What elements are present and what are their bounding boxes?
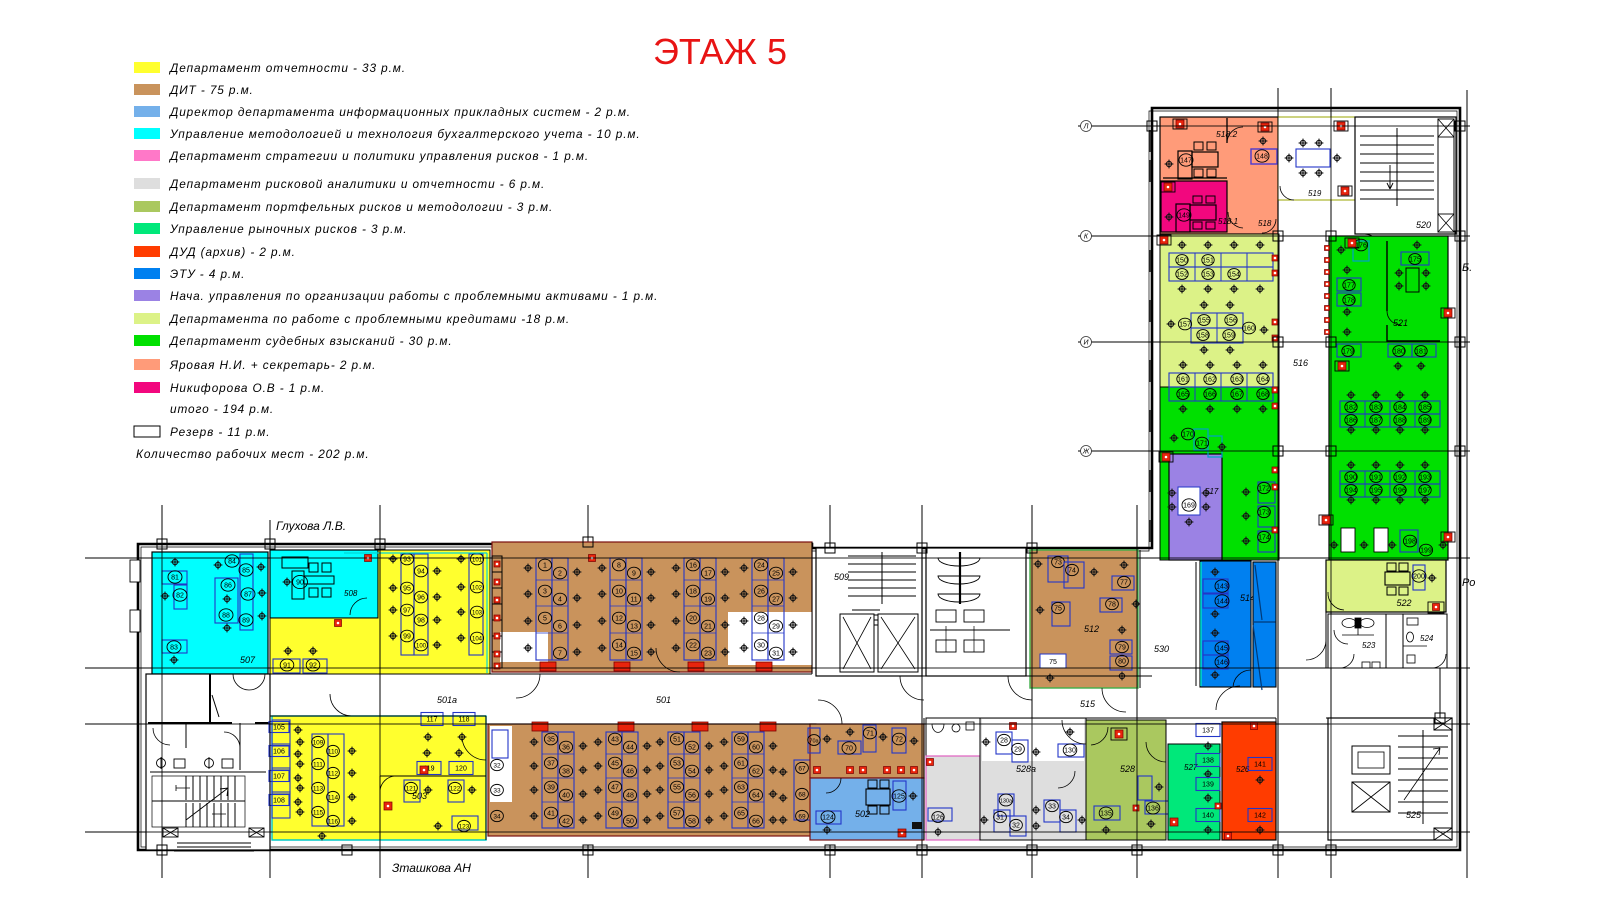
- svg-text:Департамент судебных взысканий: Департамент судебных взысканий - 30 р.м.: [168, 334, 453, 348]
- svg-text:521: 521: [1393, 318, 1408, 328]
- svg-text:25: 25: [772, 570, 780, 577]
- svg-text:114: 114: [328, 794, 339, 801]
- svg-text:28: 28: [1000, 737, 1008, 744]
- svg-text:186: 186: [1345, 417, 1357, 424]
- svg-text:150: 150: [1176, 257, 1188, 264]
- svg-text:528: 528: [1120, 764, 1135, 774]
- svg-text:94: 94: [417, 568, 425, 575]
- svg-text:122: 122: [450, 785, 461, 792]
- svg-text:168: 168: [1257, 391, 1269, 398]
- svg-text:53: 53: [673, 760, 681, 767]
- svg-text:29: 29: [772, 623, 780, 630]
- svg-text:14: 14: [615, 642, 623, 649]
- svg-text:48: 48: [626, 792, 634, 799]
- svg-text:187: 187: [1370, 417, 1382, 424]
- svg-text:169: 169: [1183, 502, 1195, 509]
- svg-text:116: 116: [328, 818, 339, 825]
- svg-text:182: 182: [1345, 404, 1357, 411]
- svg-text:Количество рабочих мест - 202: Количество рабочих мест - 202 р.м.: [136, 447, 370, 461]
- svg-text:Нача. управления по организаци: Нача. управления по организации работы с…: [170, 289, 658, 303]
- svg-text:63: 63: [737, 784, 745, 791]
- svg-text:38: 38: [562, 768, 570, 775]
- svg-text:Департамента по работе с пробл: Департамента по работе с проблемными кре…: [168, 312, 570, 326]
- svg-text:99: 99: [403, 633, 411, 640]
- svg-text:71: 71: [866, 730, 874, 737]
- svg-text:33: 33: [493, 787, 501, 794]
- svg-text:42: 42: [562, 818, 570, 825]
- svg-text:7: 7: [558, 650, 562, 657]
- svg-text:83: 83: [170, 644, 178, 651]
- svg-text:200: 200: [1413, 573, 1425, 580]
- svg-text:6: 6: [558, 623, 562, 630]
- svg-text:Л: Л: [1083, 124, 1089, 131]
- svg-text:171: 171: [1196, 440, 1208, 447]
- svg-text:итого - 194 р.м.: итого - 194 р.м.: [170, 402, 274, 416]
- svg-text:125: 125: [893, 793, 905, 800]
- svg-text:12: 12: [615, 615, 623, 622]
- svg-text:517: 517: [1205, 487, 1219, 496]
- svg-text:96: 96: [417, 594, 425, 601]
- svg-text:86: 86: [224, 582, 232, 589]
- svg-text:192: 192: [1394, 474, 1406, 481]
- svg-text:78: 78: [1108, 601, 1116, 608]
- svg-text:75: 75: [1049, 659, 1057, 666]
- svg-text:67: 67: [798, 765, 806, 772]
- svg-text:62: 62: [752, 768, 760, 775]
- svg-text:ДУД (архив) - 2 р.м.: ДУД (архив) - 2 р.м.: [168, 245, 296, 259]
- svg-text:98: 98: [417, 617, 425, 624]
- svg-text:178: 178: [1343, 297, 1355, 304]
- svg-text:189: 189: [1419, 417, 1431, 424]
- svg-text:81: 81: [171, 574, 179, 581]
- svg-text:22: 22: [689, 642, 697, 649]
- svg-text:65: 65: [737, 810, 745, 817]
- svg-text:19: 19: [704, 596, 712, 603]
- svg-text:181: 181: [1415, 348, 1427, 355]
- svg-text:11: 11: [630, 596, 637, 603]
- svg-text:24: 24: [757, 562, 765, 569]
- svg-text:173: 173: [1258, 509, 1270, 516]
- svg-text:54: 54: [688, 768, 696, 775]
- svg-text:46: 46: [626, 768, 634, 775]
- svg-text:115: 115: [313, 809, 324, 816]
- svg-text:13: 13: [630, 623, 638, 630]
- svg-text:141: 141: [1254, 762, 1266, 769]
- svg-text:55: 55: [673, 784, 681, 791]
- svg-text:85: 85: [242, 567, 250, 574]
- svg-text:108: 108: [273, 798, 285, 805]
- svg-text:50: 50: [626, 818, 634, 825]
- svg-text:90: 90: [296, 579, 304, 586]
- svg-text:69: 69: [798, 813, 806, 820]
- svg-text:3: 3: [543, 588, 547, 595]
- svg-text:36: 36: [562, 744, 570, 751]
- svg-text:Никифорова О.В - 1 р.м.: Никифорова О.В - 1 р.м.: [170, 381, 325, 395]
- svg-text:15: 15: [630, 650, 638, 657]
- svg-text:Департамент портфельных рисков: Департамент портфельных рисков и методол…: [168, 200, 553, 214]
- svg-text:44: 44: [626, 744, 634, 751]
- svg-text:518: 518: [1258, 219, 1272, 228]
- svg-text:523: 523: [1362, 641, 1376, 650]
- svg-text:143: 143: [1216, 583, 1228, 590]
- svg-text:28: 28: [757, 615, 765, 622]
- svg-text:102: 102: [472, 585, 483, 591]
- svg-text:Департамент рисковой аналитики: Департамент рисковой аналитики и отчетно…: [168, 177, 545, 191]
- svg-text:512: 512: [1084, 624, 1099, 634]
- svg-text:49: 49: [611, 810, 619, 817]
- svg-text:33: 33: [1048, 803, 1056, 810]
- svg-text:ДИТ - 75 р.м.: ДИТ - 75 р.м.: [168, 83, 254, 97]
- svg-text:151: 151: [1202, 257, 1214, 264]
- svg-text:87: 87: [244, 591, 252, 598]
- svg-text:34: 34: [1062, 814, 1070, 821]
- svg-text:21: 21: [704, 623, 712, 630]
- svg-text:123: 123: [459, 823, 470, 830]
- svg-text:31: 31: [772, 650, 780, 657]
- svg-text:52: 52: [688, 744, 696, 751]
- svg-text:146: 146: [1216, 659, 1228, 666]
- svg-text:43: 43: [611, 736, 619, 743]
- svg-text:188: 188: [1394, 417, 1406, 424]
- svg-text:88: 88: [222, 612, 230, 619]
- svg-text:Управление методологией и техн: Управление методологией и технология бух…: [169, 127, 641, 141]
- svg-text:198: 198: [1404, 538, 1416, 545]
- svg-text:18: 18: [689, 588, 697, 595]
- svg-text:74: 74: [1068, 567, 1076, 574]
- svg-text:190: 190: [1345, 474, 1357, 481]
- svg-text:162: 162: [1204, 376, 1216, 383]
- svg-text:16: 16: [689, 562, 697, 569]
- svg-text:175: 175: [1409, 256, 1421, 263]
- svg-text:153: 153: [1202, 271, 1214, 278]
- svg-text:158: 158: [1197, 332, 1209, 339]
- svg-text:37: 37: [547, 760, 555, 767]
- svg-text:105: 105: [273, 725, 285, 732]
- svg-text:8: 8: [617, 562, 621, 569]
- svg-text:47: 47: [611, 784, 619, 791]
- svg-text:525: 525: [1406, 810, 1422, 820]
- svg-text:154: 154: [1228, 271, 1240, 278]
- svg-text:66: 66: [752, 818, 760, 825]
- svg-text:Яровая Н.И. + секретарь- 2 р.м: Яровая Н.И. + секретарь- 2 р.м.: [169, 358, 376, 372]
- svg-text:170: 170: [1182, 431, 1194, 438]
- svg-text:75: 75: [1054, 605, 1062, 612]
- svg-text:ЭТАЖ 5: ЭТАЖ 5: [653, 31, 787, 72]
- svg-text:107: 107: [273, 774, 285, 781]
- svg-text:51: 51: [673, 736, 681, 743]
- svg-text:2: 2: [558, 570, 562, 577]
- svg-text:17: 17: [704, 570, 712, 577]
- svg-text:157: 157: [1179, 321, 1191, 328]
- svg-text:110: 110: [328, 748, 339, 755]
- svg-text:142: 142: [1254, 813, 1266, 820]
- svg-text:31: 31: [996, 814, 1004, 821]
- svg-text:138: 138: [1202, 758, 1214, 765]
- svg-text:93: 93: [403, 556, 411, 563]
- svg-text:68: 68: [798, 791, 806, 798]
- svg-text:516: 516: [1293, 358, 1308, 368]
- svg-text:130: 130: [1064, 747, 1076, 754]
- svg-text:9: 9: [632, 570, 636, 577]
- svg-text:82: 82: [176, 592, 184, 599]
- svg-text:152: 152: [1176, 271, 1188, 278]
- svg-text:180: 180: [1393, 348, 1405, 355]
- svg-text:528а: 528а: [1016, 764, 1036, 774]
- svg-text:72: 72: [895, 736, 903, 743]
- svg-text:70: 70: [845, 745, 853, 752]
- svg-text:130а: 130а: [1000, 798, 1013, 804]
- svg-text:501а: 501а: [437, 695, 457, 705]
- svg-text:164: 164: [1257, 376, 1269, 383]
- svg-text:34: 34: [493, 813, 501, 820]
- svg-text:509: 509: [834, 572, 849, 582]
- svg-text:77: 77: [1120, 579, 1128, 586]
- svg-text:57: 57: [673, 810, 681, 817]
- svg-text:156: 156: [1225, 317, 1237, 324]
- svg-text:195: 195: [1370, 487, 1382, 494]
- svg-text:140: 140: [1202, 813, 1214, 820]
- svg-text:61: 61: [737, 760, 745, 767]
- svg-text:174: 174: [1258, 534, 1270, 541]
- svg-text:126: 126: [932, 814, 944, 821]
- svg-text:124: 124: [822, 814, 834, 821]
- svg-text:32: 32: [493, 762, 501, 769]
- svg-text:41: 41: [547, 810, 555, 817]
- svg-text:183: 183: [1370, 404, 1382, 411]
- svg-text:196: 196: [1394, 487, 1406, 494]
- svg-text:4: 4: [558, 596, 562, 603]
- svg-text:Директор департамента информац: Директор департамента информационных при…: [168, 105, 631, 119]
- svg-text:1: 1: [543, 562, 547, 569]
- svg-text:97: 97: [403, 607, 411, 614]
- svg-text:59: 59: [737, 736, 745, 743]
- svg-text:Глухова Л.В.: Глухова Л.В.: [276, 519, 346, 533]
- svg-text:73: 73: [1054, 559, 1062, 566]
- svg-text:121: 121: [406, 785, 417, 792]
- svg-text:32: 32: [1012, 822, 1020, 829]
- svg-text:191: 191: [1370, 474, 1382, 481]
- svg-text:60: 60: [752, 744, 760, 751]
- svg-text:524: 524: [1420, 634, 1434, 643]
- svg-text:Ж: Ж: [1082, 449, 1090, 456]
- svg-text:10: 10: [615, 588, 623, 595]
- svg-text:161: 161: [1177, 376, 1189, 383]
- svg-text:519: 519: [1308, 189, 1322, 198]
- svg-text:508: 508: [344, 589, 358, 598]
- svg-text:39: 39: [547, 784, 555, 791]
- svg-text:56: 56: [688, 792, 696, 799]
- svg-text:100: 100: [416, 643, 427, 649]
- svg-text:112: 112: [328, 770, 339, 777]
- svg-text:111: 111: [313, 761, 323, 768]
- svg-text:144: 144: [1216, 598, 1228, 605]
- svg-text:145: 145: [1216, 645, 1228, 652]
- svg-text:520: 520: [1416, 220, 1431, 230]
- svg-text:Резерв - 11 р.м.: Резерв - 11 р.м.: [170, 425, 270, 439]
- svg-text:ЭТУ - 4 р.м.: ЭТУ - 4 р.м.: [170, 267, 245, 281]
- svg-text:118: 118: [458, 717, 469, 724]
- svg-text:530: 530: [1154, 644, 1169, 654]
- svg-text:185: 185: [1419, 404, 1431, 411]
- svg-text:163: 163: [1231, 376, 1243, 383]
- svg-text:165: 165: [1177, 391, 1189, 398]
- svg-text:117: 117: [426, 717, 437, 724]
- svg-text:5: 5: [543, 615, 547, 622]
- svg-text:507: 507: [240, 655, 256, 665]
- svg-text:501: 501: [656, 695, 671, 705]
- svg-text:199: 199: [1420, 547, 1432, 554]
- svg-text:515: 515: [1080, 699, 1096, 709]
- svg-text:135: 135: [1100, 810, 1112, 817]
- svg-text:95: 95: [403, 585, 411, 592]
- svg-text:70а: 70а: [809, 738, 819, 744]
- svg-text:193: 193: [1419, 474, 1431, 481]
- svg-text:177: 177: [1343, 282, 1355, 289]
- svg-text:160: 160: [1243, 325, 1255, 332]
- svg-text:Управление рыночных рисков - 3: Управление рыночных рисков - 3 р.м.: [169, 222, 407, 236]
- svg-text:155: 155: [1198, 317, 1210, 324]
- svg-text:179: 179: [1342, 348, 1354, 355]
- svg-text:518.1: 518.1: [1218, 217, 1238, 226]
- svg-text:84: 84: [228, 558, 236, 565]
- svg-text:23: 23: [704, 650, 712, 657]
- svg-text:149: 149: [1178, 212, 1190, 219]
- svg-text:197: 197: [1419, 487, 1431, 494]
- svg-text:147: 147: [1180, 157, 1192, 164]
- svg-text:64: 64: [752, 792, 760, 799]
- svg-text:139: 139: [1202, 782, 1214, 789]
- svg-text:136: 136: [1147, 805, 1159, 812]
- svg-text:26: 26: [757, 588, 765, 595]
- svg-text:106: 106: [273, 749, 285, 756]
- svg-text:172: 172: [1258, 485, 1270, 492]
- svg-text:40: 40: [562, 792, 570, 799]
- svg-text:137: 137: [1202, 728, 1214, 735]
- svg-text:58: 58: [688, 818, 696, 825]
- svg-text:522: 522: [1396, 598, 1411, 608]
- svg-text:113: 113: [313, 785, 324, 792]
- svg-text:45: 45: [611, 760, 619, 767]
- svg-text:167: 167: [1231, 391, 1243, 398]
- svg-text:Департамент стратегии и полити: Департамент стратегии и политики управле…: [168, 149, 589, 163]
- svg-text:120: 120: [455, 766, 467, 773]
- svg-text:20: 20: [689, 615, 697, 622]
- svg-text:166: 166: [1204, 391, 1216, 398]
- svg-text:80: 80: [1118, 658, 1126, 665]
- svg-text:27: 27: [772, 596, 780, 603]
- svg-text:35: 35: [547, 736, 555, 743]
- svg-text:29: 29: [1014, 746, 1022, 753]
- svg-text:184: 184: [1394, 404, 1406, 411]
- svg-text:109: 109: [313, 739, 324, 746]
- svg-text:104: 104: [472, 636, 483, 642]
- svg-text:Департамент отчетности - 33 р.: Департамент отчетности - 33 р.м.: [168, 61, 406, 75]
- svg-text:194: 194: [1345, 487, 1357, 494]
- svg-text:79: 79: [1118, 644, 1126, 651]
- svg-text:30: 30: [757, 642, 765, 649]
- svg-text:Зташкова АН: Зташкова АН: [392, 861, 471, 875]
- svg-text:148: 148: [1256, 153, 1268, 160]
- svg-text:Ро: Ро: [1462, 577, 1475, 589]
- svg-text:159: 159: [1223, 332, 1235, 339]
- svg-text:89: 89: [242, 617, 250, 624]
- svg-text:103: 103: [472, 610, 483, 616]
